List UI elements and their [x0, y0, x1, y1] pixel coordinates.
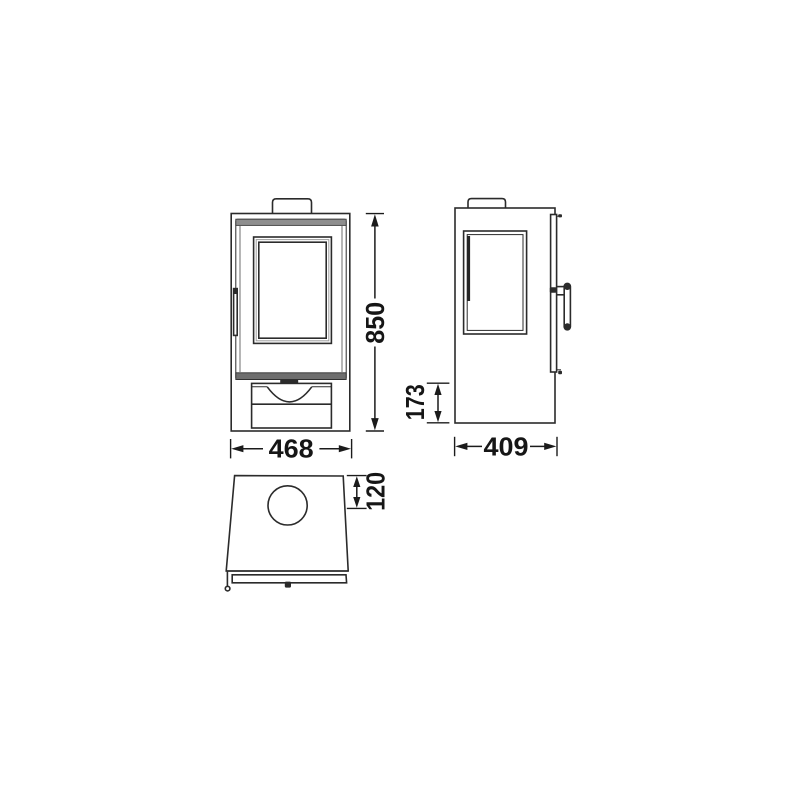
side-handle-rod-cap-bottom	[564, 323, 570, 330]
dim-depth-arrow-right	[544, 443, 556, 450]
front-door-top-trim	[236, 219, 346, 225]
front-door-handle-cap	[234, 289, 238, 294]
dim-depth-arrow-left	[455, 443, 467, 450]
stove-dimension-diagram-page: 850 173 120 468 409	[0, 0, 800, 800]
dimension-height: 850	[360, 214, 390, 431]
front-door-handle	[234, 289, 238, 336]
dim-flue-arrow-down	[353, 497, 360, 508]
front-flue-collar	[273, 199, 312, 214]
top-flue-circle	[268, 486, 307, 525]
side-handle-rod	[564, 283, 570, 329]
dimension-flue-offset: 120	[347, 472, 391, 511]
dim-flue-arrow-up	[353, 476, 360, 487]
front-log-store-outline	[252, 383, 332, 428]
dim-width-arrow-right	[339, 445, 351, 452]
side-flue-collar	[468, 199, 506, 208]
dim-base-arrow-down	[434, 411, 441, 422]
side-handle-hub	[550, 287, 557, 293]
dim-height-arrow-up	[371, 214, 379, 226]
dimension-base-height: 173	[400, 383, 450, 423]
dim-height-label: 850	[360, 302, 390, 344]
front-door-bottom-trim	[236, 373, 346, 380]
dim-height-arrow-down	[371, 418, 379, 430]
dim-base-arrow-up	[434, 384, 441, 395]
dimension-width: 468	[231, 434, 352, 464]
side-door-edge-strip	[551, 215, 557, 373]
side-door-edge-cap-top	[558, 214, 562, 217]
side-door-edge-cap-bottom	[558, 371, 562, 374]
dim-base-label: 173	[400, 384, 430, 420]
dim-depth-label: 409	[484, 431, 529, 461]
dimension-depth: 409	[455, 431, 557, 461]
dim-width-label: 468	[269, 434, 314, 464]
side-view-stove	[455, 199, 570, 423]
top-door-latch	[285, 582, 291, 588]
dim-width-arrow-left	[231, 445, 243, 452]
dim-flue-label: 120	[360, 472, 390, 511]
top-view-stove	[225, 476, 348, 591]
stove-dimension-diagram: 850 173 120 468 409	[0, 0, 800, 800]
top-handle-knob	[225, 586, 230, 591]
side-handle-rod-cap-top	[564, 283, 570, 290]
front-view-stove	[231, 199, 350, 431]
